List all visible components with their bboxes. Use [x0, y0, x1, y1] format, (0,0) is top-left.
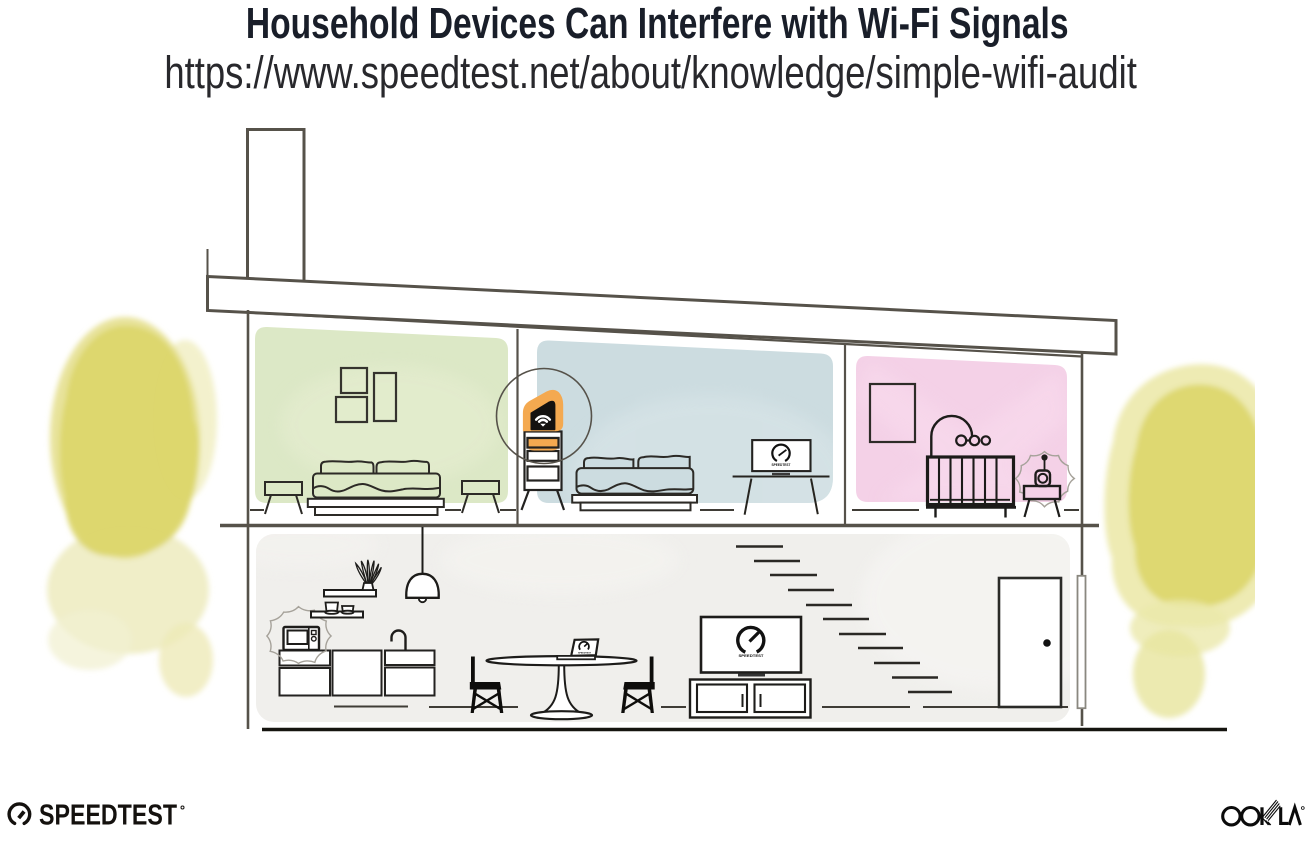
svg-text:SPEEDTEST: SPEEDTEST [578, 653, 592, 655]
svg-text:SPEEDTEST: SPEEDTEST [772, 463, 792, 467]
svg-text:SPEEDTEST: SPEEDTEST [39, 800, 177, 832]
svg-text:SPEEDTEST: SPEEDTEST [739, 653, 765, 658]
